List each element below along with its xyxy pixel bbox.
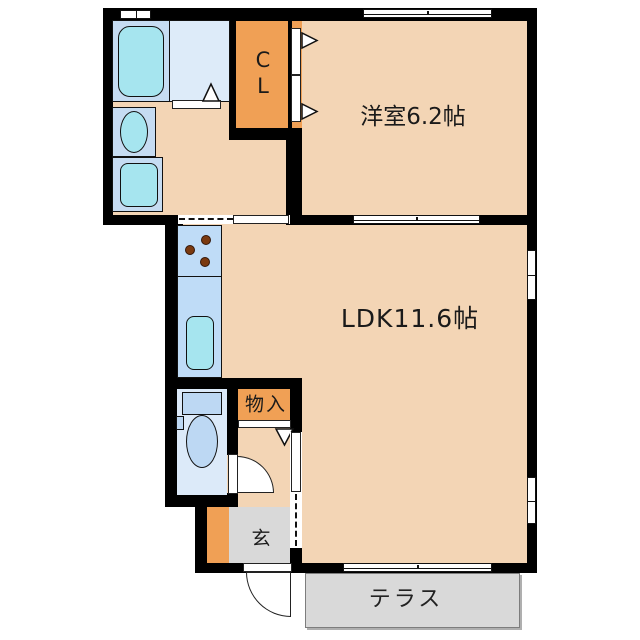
- ldk-label: LDK11.6帖: [341, 299, 479, 335]
- sliding-door-western-ldk: [353, 215, 480, 224]
- wall-closet-left: [229, 20, 236, 140]
- toilet-flush-handle: [176, 416, 184, 430]
- kitchen-stove-top: [177, 225, 222, 277]
- stove-burner-icon: [185, 245, 195, 255]
- wall-kitchen-left: [165, 215, 177, 507]
- kitchen-sink: [186, 316, 214, 370]
- hall-door-panel: [291, 432, 301, 492]
- wall-entrance-left: [195, 495, 207, 573]
- wall-toilet-right-upper: [227, 389, 238, 455]
- washbasin-bowl: [120, 111, 148, 153]
- entrance-step-strip: [207, 507, 229, 563]
- closet-label-line2: L: [257, 74, 269, 98]
- western-room-window: [363, 9, 492, 18]
- closet-door-arrow-icon: [300, 102, 319, 121]
- entrance-door-swing: [246, 572, 291, 617]
- ldk-side-window-upper: [527, 250, 536, 300]
- storage-label: 物入: [245, 390, 287, 417]
- ldk-side-window-lower: [527, 477, 536, 524]
- bathtub: [118, 26, 164, 97]
- floorplan: 洋室6.2帖 LDK11.6帖 C L 物入 玄 テラス: [0, 0, 640, 640]
- closet-door-arrow-icon: [300, 31, 319, 50]
- wall-hall-ldk-upper: [290, 378, 302, 432]
- wall-washroom-western: [286, 130, 302, 225]
- stove-burner-icon: [201, 235, 211, 245]
- hall-door-dash: [295, 494, 297, 546]
- stove-burner-icon: [200, 257, 210, 267]
- bathroom-door-arrow-icon: [201, 82, 221, 102]
- washroom-door-dash: [179, 218, 233, 220]
- terrace-window: [343, 563, 492, 572]
- washing-machine: [120, 163, 158, 207]
- bathroom-window: [120, 10, 151, 19]
- toilet-bowl: [186, 415, 218, 468]
- wall-kitchen-bottom: [165, 378, 302, 389]
- western-room-label: 洋室6.2帖: [360, 97, 466, 131]
- washroom-door-panel: [233, 215, 289, 224]
- closet-label-line1: C: [256, 48, 271, 72]
- toilet-tank: [182, 392, 222, 415]
- entrance-door-opening: [243, 563, 292, 572]
- wall-closet-bottom: [229, 128, 302, 140]
- entrance-label: 玄: [251, 524, 272, 551]
- terrace-label: テラス: [369, 581, 444, 613]
